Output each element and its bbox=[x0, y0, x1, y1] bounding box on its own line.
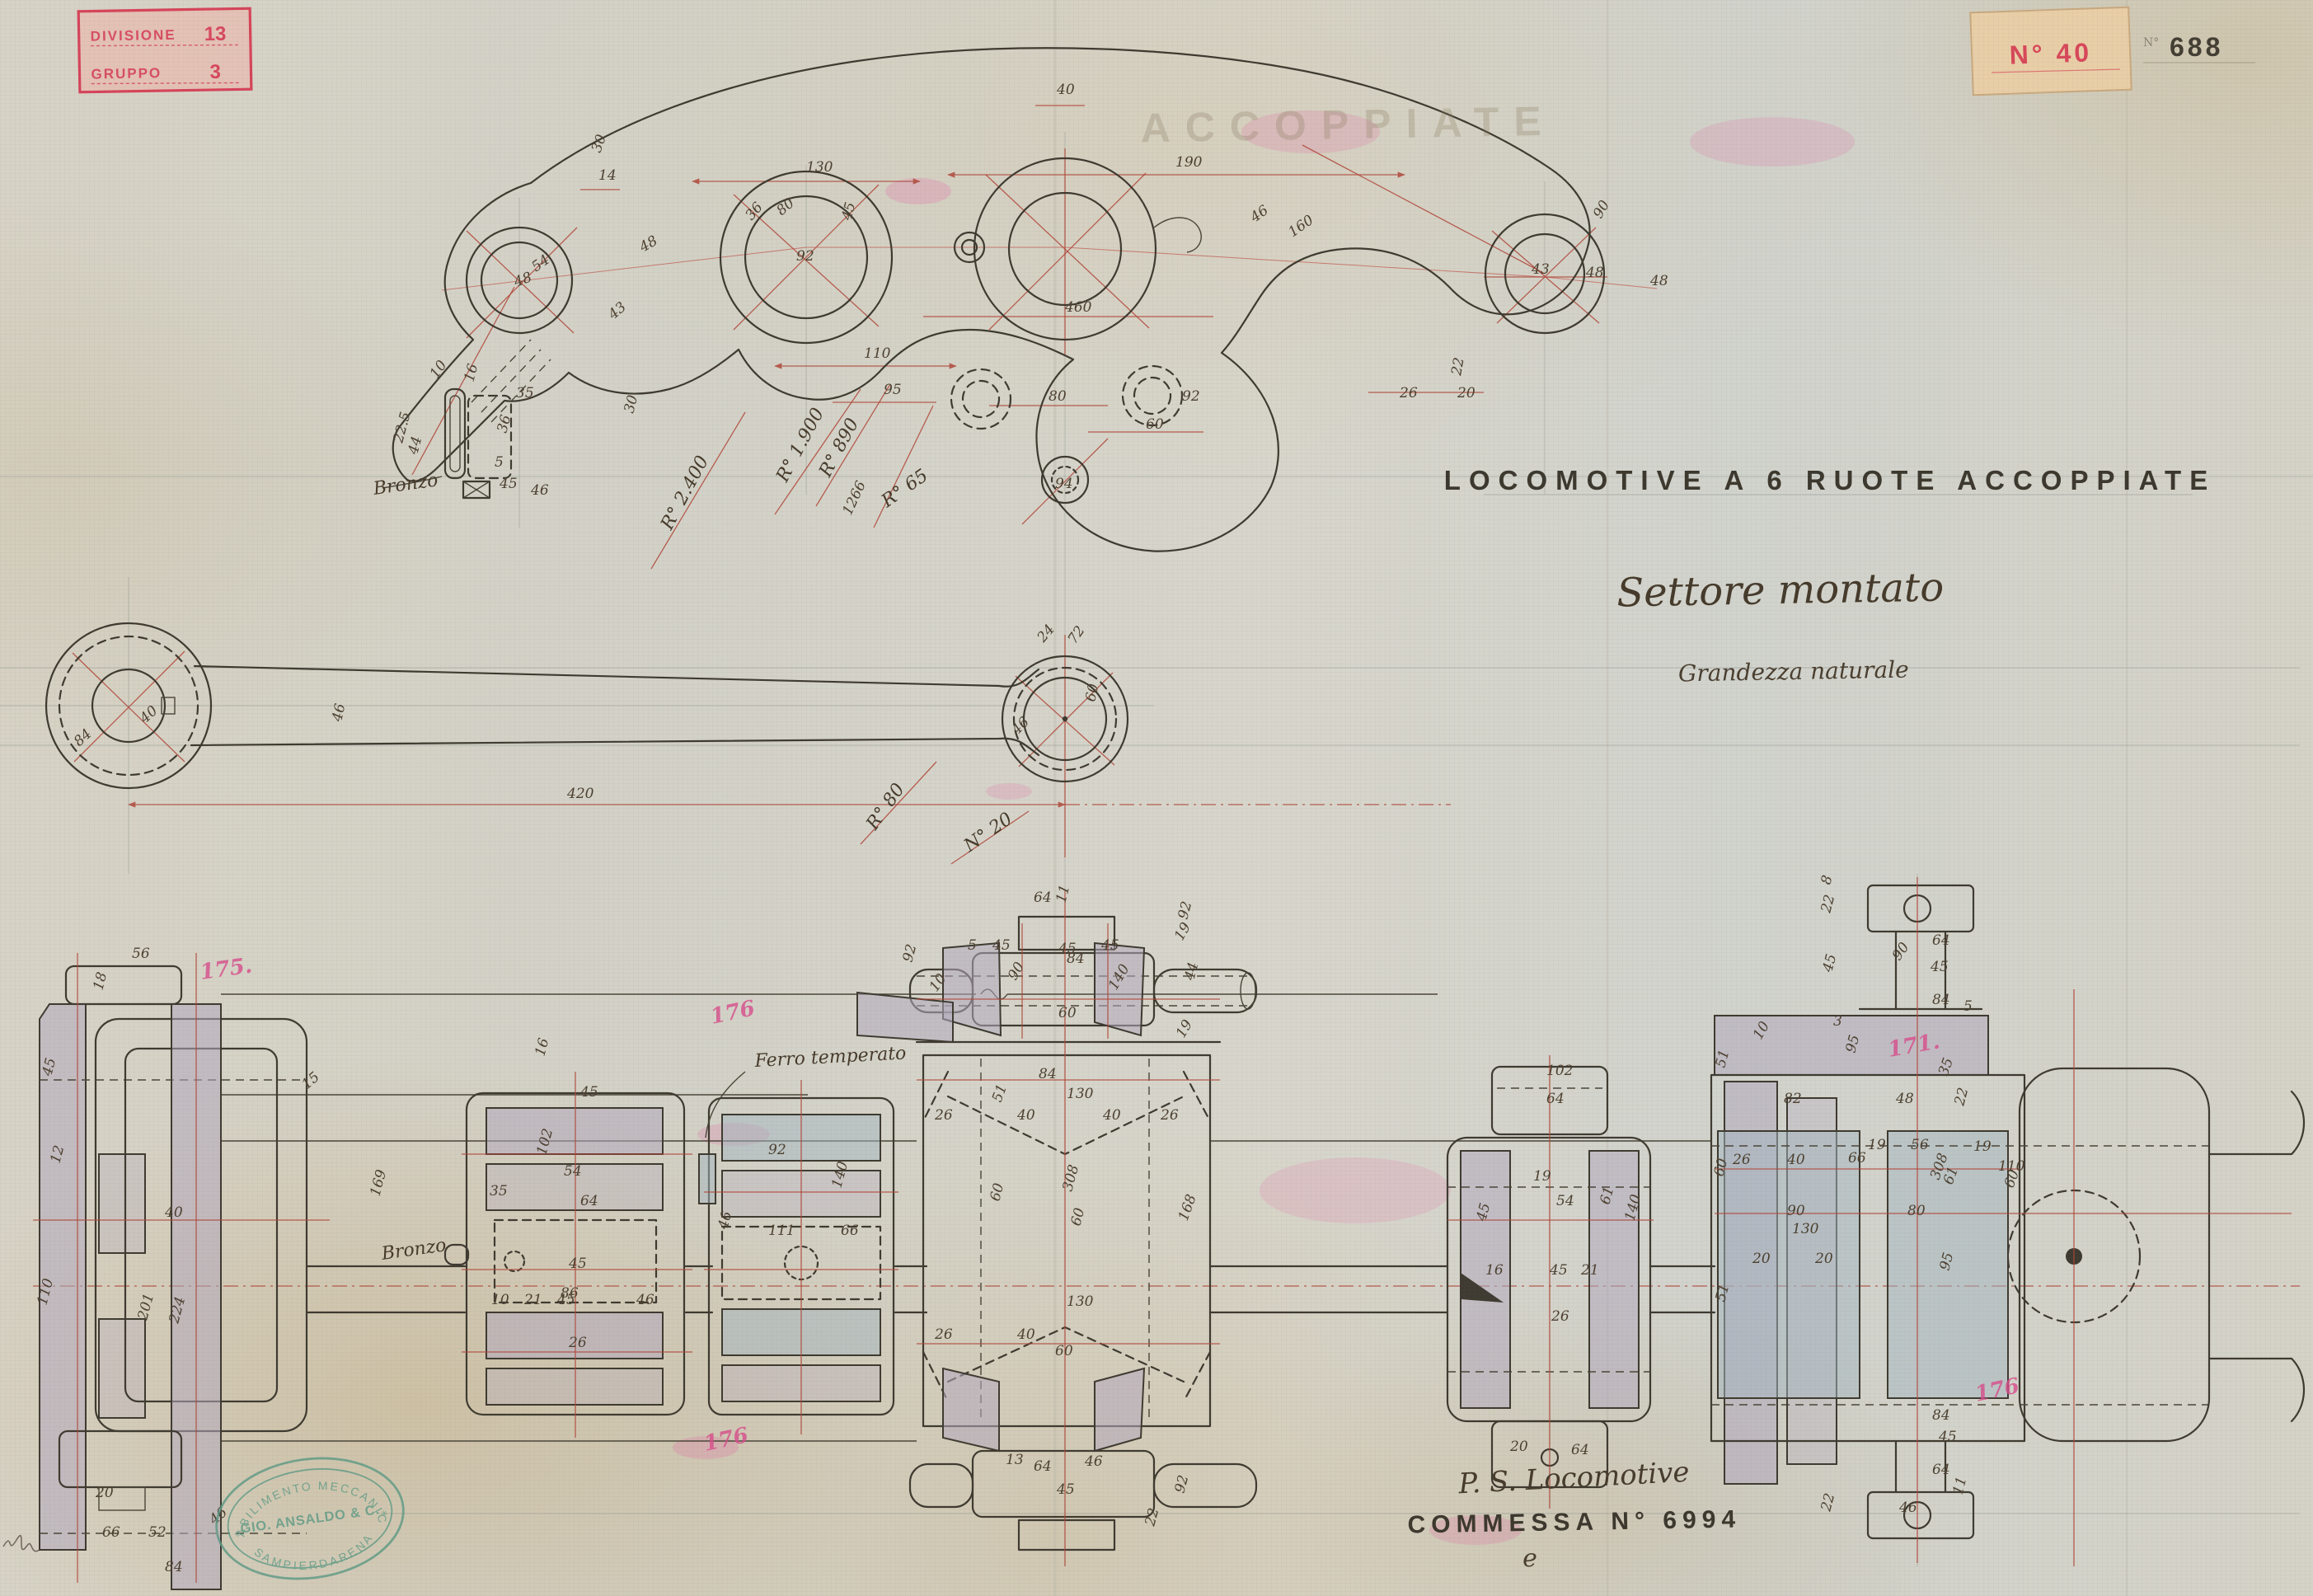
dim-annotation: 40 bbox=[1786, 1152, 1805, 1168]
drawing-subtitle: Settore montato bbox=[1616, 565, 1945, 617]
script-annotation: R° 1.900 bbox=[772, 405, 828, 486]
dim-annotation: 35 bbox=[490, 1183, 508, 1199]
dim-annotation: 64 bbox=[1932, 1462, 1950, 1478]
dim-annotation: 19 bbox=[1173, 1017, 1196, 1041]
dim-annotation: 90 bbox=[1590, 198, 1613, 222]
dim-annotation: 26 bbox=[568, 1335, 587, 1351]
dim-annotation: 190 bbox=[1175, 154, 1203, 171]
dim-annotation: 48 bbox=[511, 269, 534, 291]
dim-annotation: 60 bbox=[1082, 683, 1102, 703]
commessa-line: COMMESSA N° 6994 bbox=[1407, 1505, 1741, 1538]
dim-annotation: 26 bbox=[1399, 385, 1418, 401]
dim-annotation: 92 bbox=[796, 248, 814, 265]
dim-annotation: 45 bbox=[499, 476, 518, 492]
script-annotation: R° 2.400 bbox=[657, 453, 713, 534]
gruppo-label: GRUPPO bbox=[91, 65, 162, 82]
script-annotation: R° 80 bbox=[862, 780, 909, 834]
dim-annotation: 26 bbox=[1732, 1152, 1751, 1168]
dim-annotation: 168 bbox=[1175, 1192, 1200, 1223]
dim-annotation: 169 bbox=[368, 1168, 391, 1199]
dim-annotation: 20 bbox=[1752, 1251, 1771, 1267]
dim-annotation: 20 bbox=[1509, 1439, 1528, 1455]
dim-annotation: 46 bbox=[1247, 202, 1272, 226]
dim-annotation: 52 bbox=[148, 1524, 167, 1541]
dim-annotation: 22 bbox=[1818, 893, 1838, 915]
bleed-through-watermark: ACCOPPIATE bbox=[1140, 98, 1556, 152]
gruppo-value: 3 bbox=[209, 61, 221, 83]
dim-annotation: 92 bbox=[1172, 1473, 1193, 1495]
stamp-star-right: ✳ bbox=[380, 1509, 388, 1519]
dim-annotation: 130 bbox=[806, 159, 833, 176]
dim-annotation: 54 bbox=[1556, 1193, 1574, 1209]
dim-annotation: 22 bbox=[1818, 1491, 1838, 1514]
dim-annotation: 46 bbox=[636, 1292, 654, 1308]
dim-annotation: 46 bbox=[530, 482, 549, 499]
dim-annotation: 48 bbox=[1895, 1091, 1914, 1107]
dim-annotation: 19 bbox=[1533, 1168, 1551, 1185]
crayon-annotation: 175. bbox=[199, 953, 254, 985]
dim-annotation: 84 bbox=[71, 725, 95, 749]
dim-annotation: 72 bbox=[1065, 623, 1089, 647]
dim-annotation: 90 bbox=[1889, 940, 1913, 964]
dim-annotation: 40 bbox=[164, 1204, 183, 1221]
dim-annotation: 60 bbox=[1146, 416, 1164, 433]
dim-annotation: 10 bbox=[427, 358, 451, 382]
label-n40: N° 40 bbox=[2009, 37, 2093, 69]
dim-annotation: 5 bbox=[1963, 998, 1973, 1015]
dim-annotation: 90 bbox=[1787, 1203, 1805, 1219]
drawing-scale-note: Grandezza naturale bbox=[1678, 656, 1909, 688]
dim-annotation: 11 bbox=[1053, 883, 1074, 904]
dim-annotation: 19 bbox=[1171, 920, 1194, 944]
dim-annotation: 26 bbox=[934, 1107, 953, 1124]
dim-annotation: 26 bbox=[1551, 1308, 1569, 1325]
dim-annotation: 56 bbox=[132, 946, 150, 962]
dim-annotation: 64 bbox=[580, 1193, 598, 1209]
dim-annotation: 45 bbox=[1056, 1481, 1075, 1498]
dim-annotation: 40 bbox=[1056, 82, 1075, 98]
dim-annotation: 40 bbox=[1016, 1326, 1035, 1343]
rod-red-lines bbox=[73, 635, 1451, 864]
dim-annotation: 66 bbox=[1848, 1150, 1866, 1166]
dim-annotation: 40 bbox=[1102, 1107, 1121, 1124]
dim-annotation: 64 bbox=[1034, 1458, 1052, 1475]
right-strap-section bbox=[1447, 1055, 1654, 1509]
dim-annotation: 64 bbox=[1932, 932, 1950, 949]
dim-annotation: 92 bbox=[900, 942, 921, 964]
dim-annotation: 30 bbox=[622, 393, 642, 415]
dim-annotation: 56 bbox=[1911, 1137, 1929, 1153]
dim-annotation: 20 bbox=[95, 1485, 114, 1501]
dim-annotation: 44 bbox=[1181, 960, 1202, 983]
dim-annotation: 14 bbox=[598, 167, 617, 184]
gib-stack-section bbox=[699, 1072, 898, 1434]
dim-annotation: 15 bbox=[298, 1069, 322, 1093]
dim-annotation: 16 bbox=[1485, 1262, 1504, 1279]
dim-annotation: 8 bbox=[1818, 873, 1837, 886]
dim-annotation: 54 bbox=[564, 1163, 582, 1180]
dim-annotation: 84 bbox=[1932, 992, 1950, 1008]
stamp-arc-bottom: SAMPIERDARENA bbox=[251, 1529, 379, 1580]
central-bigend-section bbox=[857, 890, 1256, 1566]
dim-annotation: 16 bbox=[533, 1036, 553, 1058]
dim-annotation: 10 bbox=[491, 1292, 509, 1308]
dim-annotation: 201 bbox=[134, 1292, 157, 1322]
dim-annotation: 308 bbox=[1060, 1163, 1083, 1194]
dim-annotation: 3 bbox=[1833, 1013, 1842, 1030]
dim-annotation: 40 bbox=[136, 702, 161, 727]
dim-annotation: 92 bbox=[768, 1142, 786, 1158]
division-value: 13 bbox=[204, 23, 226, 45]
dim-annotation: 420 bbox=[566, 786, 594, 802]
division-label: DIVISIONE bbox=[91, 27, 176, 45]
dim-annotation: 19 bbox=[1868, 1137, 1886, 1153]
dim-annotation: 45 bbox=[1549, 1262, 1568, 1279]
dim-annotation: 11 bbox=[1950, 1475, 1971, 1496]
dim-annotation: 22 bbox=[1142, 1506, 1162, 1528]
dim-annotation: 80 bbox=[773, 195, 798, 218]
dim-annotation: 110 bbox=[864, 345, 891, 362]
dim-annotation: 36 bbox=[495, 413, 515, 434]
dim-annotation: 5 bbox=[495, 454, 504, 471]
dim-annotation: 60 bbox=[1055, 1343, 1073, 1359]
dim-annotation: 80 bbox=[1907, 1203, 1926, 1219]
n688-prefix: N° bbox=[2143, 36, 2159, 49]
dim-annotation: 160 bbox=[1285, 212, 1316, 241]
number-label-group: N° 40 N° 688 bbox=[1970, 7, 2255, 96]
crayon-annotation: 176 bbox=[708, 996, 757, 1030]
title-block: LOCOMOTIVE A 6 RUOTE ACCOPPIATE Settore … bbox=[1444, 465, 2216, 687]
script-annotation: Ferro temperato bbox=[753, 1043, 907, 1072]
dim-annotation: 51 bbox=[989, 1082, 1011, 1105]
dim-annotation: 92 bbox=[1182, 388, 1200, 405]
dim-annotation: 20 bbox=[1457, 385, 1476, 401]
dim-annotation: 66 bbox=[102, 1524, 120, 1541]
dim-annotation: 84 bbox=[1039, 1066, 1057, 1082]
dim-annotation: 22 bbox=[1951, 1086, 1972, 1108]
dim-annotation: 86 bbox=[561, 1285, 579, 1302]
script-annotation: Bronzo bbox=[379, 1235, 448, 1265]
dim-annotation: 84 bbox=[1932, 1407, 1950, 1424]
dim-annotation: 66 bbox=[841, 1223, 859, 1239]
dim-annotation: 35 bbox=[516, 385, 534, 401]
order-flourish: e bbox=[1522, 1544, 1537, 1573]
dim-annotation: 45 bbox=[579, 1084, 598, 1101]
dim-annotation: 60 bbox=[1068, 1206, 1089, 1228]
dim-annotation: 46 bbox=[1084, 1453, 1103, 1470]
dim-annotation: 45 bbox=[1938, 1429, 1957, 1445]
dim-annotation: 64 bbox=[1571, 1442, 1589, 1458]
dim-annotation: 130 bbox=[1067, 1086, 1094, 1102]
brass-stack-section bbox=[445, 1072, 692, 1438]
dim-annotation: 43 bbox=[1531, 261, 1550, 278]
dim-annotation: 45 bbox=[1819, 952, 1840, 974]
dim-annotation: 46 bbox=[715, 1209, 735, 1232]
script-annotation: N° 20 bbox=[959, 809, 1016, 857]
dim-annotation: 84 bbox=[165, 1559, 183, 1575]
dim-annotation: 26 bbox=[934, 1326, 953, 1343]
dim-annotation: 45 bbox=[992, 937, 1011, 954]
dim-annotation: 130 bbox=[1792, 1221, 1819, 1237]
dim-annotation: 26 bbox=[1160, 1107, 1179, 1124]
dim-annotation: 64 bbox=[1546, 1091, 1565, 1107]
dim-annotation: 60 bbox=[988, 1181, 1008, 1203]
dim-annotation: 45 bbox=[568, 1256, 587, 1272]
dim-annotation: 40 bbox=[1016, 1107, 1035, 1124]
dim-annotation: 92 bbox=[1175, 899, 1196, 921]
stamp-star-left: ✳ bbox=[233, 1530, 242, 1540]
dim-annotation: 46 bbox=[1008, 714, 1033, 739]
coupling-rod-side-view bbox=[46, 623, 1451, 864]
script-annotation: Bronzo bbox=[371, 470, 439, 500]
dim-annotation: 45 bbox=[1100, 937, 1119, 954]
dim-annotation: 46 bbox=[1898, 1500, 1917, 1516]
dim-annotation: 64 bbox=[1034, 890, 1052, 906]
dim-annotation: 94 bbox=[1055, 476, 1073, 492]
dim-annotation: 80 bbox=[1049, 388, 1067, 405]
dim-annotation: 13 bbox=[1006, 1452, 1024, 1468]
script-annotation: R° 65 bbox=[877, 466, 931, 513]
dim-annotation: 36 bbox=[743, 199, 767, 224]
dim-annotation: 19 bbox=[1973, 1138, 1992, 1155]
n688-number: 688 bbox=[2170, 32, 2223, 62]
division-stamp: DIVISIONE 13 GRUPPO 3 bbox=[78, 8, 251, 92]
corner-scribble bbox=[3, 1536, 40, 1551]
dim-annotation: 45 bbox=[1930, 959, 1949, 975]
dim-annotation: 82 bbox=[1784, 1091, 1802, 1107]
order-block: P. S. Locomotive COMMESSA N° 6994 e bbox=[1407, 1456, 1741, 1573]
ansaldo-oval-stamp: STABILIMENTO MECCANICO GIO. ANSALDO & C.… bbox=[209, 1447, 411, 1590]
drawing-sheet: 4013019030148036925448484345359530110460… bbox=[0, 0, 2313, 1596]
dim-annotation: 43 bbox=[605, 299, 630, 324]
dim-annotation: 130 bbox=[1067, 1293, 1094, 1310]
dim-annotation: 45 bbox=[838, 200, 859, 223]
dim-annotation: 46 bbox=[329, 702, 349, 724]
dim-annotation: 18 bbox=[91, 970, 111, 992]
dim-annotation: 102 bbox=[1546, 1063, 1573, 1079]
dim-annotation: 5 bbox=[968, 937, 977, 954]
dim-annotation: 21 bbox=[523, 1292, 542, 1308]
dim-annotation: 48 bbox=[1585, 265, 1604, 281]
dim-annotation: 44 bbox=[405, 434, 425, 457]
dim-annotation: 22 bbox=[1448, 356, 1468, 378]
dim-annotation: 48 bbox=[636, 232, 661, 256]
dim-annotation: 460 bbox=[1064, 299, 1092, 316]
dim-annotation: 95 bbox=[884, 382, 902, 398]
dim-annotation: 90 bbox=[1005, 960, 1028, 983]
dim-annotation: 48 bbox=[1649, 273, 1668, 289]
dim-annotation: 20 bbox=[1814, 1251, 1833, 1267]
dim-annotation: 111 bbox=[768, 1223, 795, 1239]
crayon-annotation: 176 bbox=[701, 1423, 750, 1457]
dim-annotation: 60 bbox=[1058, 1005, 1077, 1021]
dim-annotation: 21 bbox=[1580, 1262, 1599, 1279]
drawing-title: LOCOMOTIVE A 6 RUOTE ACCOPPIATE bbox=[1444, 465, 2216, 495]
dim-annotation: 1266 bbox=[839, 478, 869, 518]
dim-annotation: 16 bbox=[462, 362, 482, 383]
dim-annotation: 84 bbox=[1067, 951, 1085, 967]
